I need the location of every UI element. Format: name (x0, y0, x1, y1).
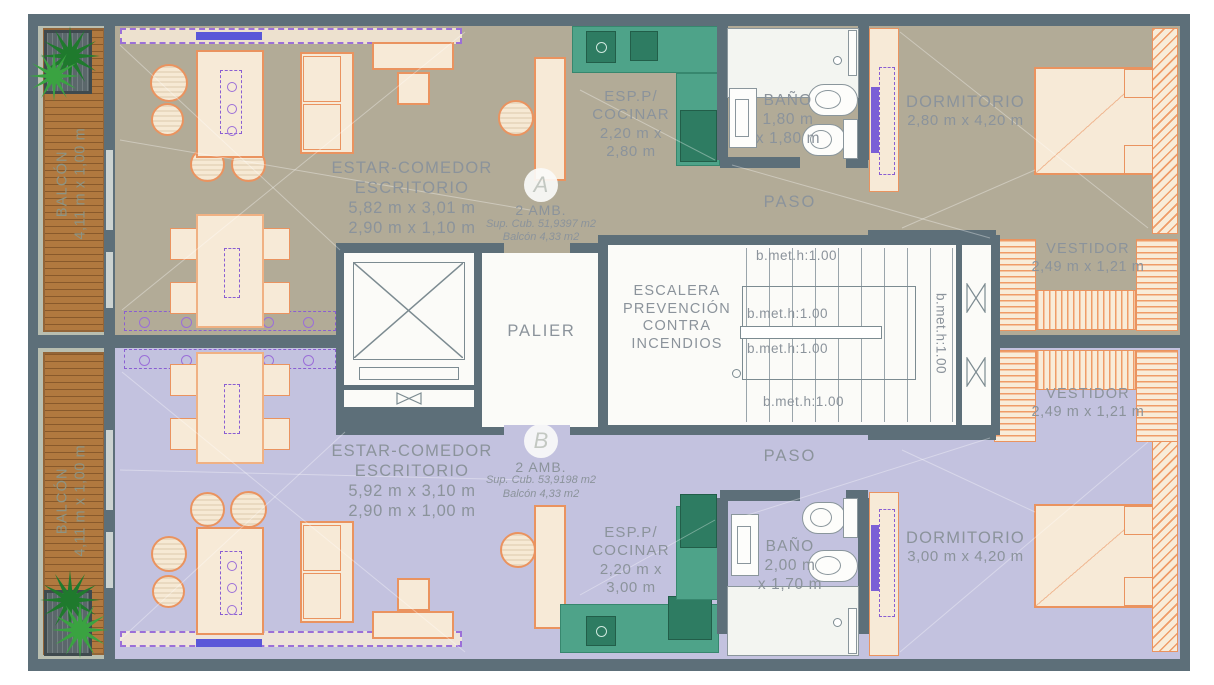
media-table-a (196, 50, 264, 158)
window (106, 150, 113, 230)
pillow (1124, 506, 1153, 535)
vestidor-a-label: VESTIDOR 2,49 m x 1,21 m (1008, 241, 1168, 276)
room-dim: 2,00 m (744, 557, 836, 576)
room-name: ESCRITORIO (328, 178, 496, 198)
stove-icon (630, 31, 658, 61)
window (106, 430, 113, 510)
rail-height-label: b.met.h:1.00 (934, 259, 949, 409)
toilet-tank (843, 119, 858, 159)
shower-door (848, 608, 857, 654)
room-dim: 4,11 m x 1,00 m (72, 416, 90, 586)
stair-label: ESCALERA PREVENCIÓN CONTRA INCENDIOS (610, 283, 744, 354)
room-name: ESTAR-COMEDOR (328, 441, 496, 461)
living-b-label: ESTAR-COMEDOR ESCRITORIO 5,92 m x 3,10 m… (328, 441, 496, 522)
fridge-icon (680, 494, 717, 548)
room-name: VESTIDOR (1008, 241, 1168, 259)
room-dim: 2,20 m x (583, 561, 679, 579)
dining-table-a (196, 214, 264, 328)
sliding-door-a-leaf (196, 32, 262, 40)
bath-a-label: BAÑO 1,80 m x 1,80 m (742, 92, 834, 149)
room-name: PASO (750, 192, 830, 212)
wall (858, 26, 869, 160)
unit-b-type: 2 AMB. (491, 459, 591, 475)
room-name: ESTAR-COMEDOR (328, 158, 496, 178)
room-name: ESP.P/ (583, 88, 679, 106)
bed-a-headboard-wardrobe (1152, 28, 1178, 234)
room-dim: 3,00 m (583, 579, 679, 597)
toilet-icon (802, 502, 846, 534)
room-name: ESCALERA (610, 283, 744, 301)
unit-b-badge: B (524, 424, 558, 458)
room-dim: x 1,80 m (742, 130, 834, 149)
room-name: VESTIDOR (1008, 386, 1168, 404)
pouf (152, 575, 185, 608)
desk-b (372, 611, 454, 639)
media-table-b (196, 527, 264, 635)
bath-b-label: BAÑO 2,00 m x 1,70 m (744, 538, 836, 595)
room-name: BAÑO (744, 538, 836, 557)
room-name: DORMITORIO (888, 528, 1043, 548)
door-opening (800, 490, 846, 501)
sink-icon (586, 616, 616, 646)
vent-shaft (962, 245, 991, 425)
room-dim: 3,00 m x 4,20 m (888, 548, 1043, 566)
fridge-icon (680, 110, 717, 162)
elevator-sill (359, 367, 459, 380)
room-name: ESCRITORIO (328, 461, 496, 481)
room-name: COCINAR (583, 106, 679, 124)
rail-height-label: b.met.h:1.00 (763, 394, 844, 409)
palier-label: PALIER (494, 321, 589, 341)
unit-letter: A (534, 172, 549, 198)
pouf (151, 536, 187, 572)
room-name: BAÑO (742, 92, 834, 111)
stool-b (500, 532, 536, 568)
room-name: BALCÓN (54, 416, 72, 586)
unit-a-type: 2 AMB. (491, 202, 591, 218)
stair-newel (732, 369, 741, 378)
room-dim: 1,80 m (742, 111, 834, 130)
duct-shaft (344, 390, 474, 407)
room-dim: 2,49 m x 1,21 m (1008, 404, 1168, 422)
room-name: BALCÓN (54, 99, 72, 269)
room-dim: 5,92 m x 3,10 m (328, 481, 496, 501)
balcony-b-label: BALCÓN 4,11 m x 1,00 m (54, 416, 89, 586)
bedroom-a-label: DORMITORIO 2,80 m x 4,20 m (888, 92, 1043, 130)
shower-door (848, 30, 857, 76)
room-name: PREVENCIÓN (610, 301, 744, 319)
pillow (1124, 69, 1153, 98)
chair (397, 72, 430, 105)
sofa-a (300, 52, 354, 154)
toilet-tank (843, 498, 858, 538)
work-table-a (534, 57, 566, 181)
rail-height-label: b.met.h:1.00 (747, 306, 828, 321)
stove-icon (668, 596, 712, 640)
vent-icon (966, 283, 986, 313)
kitchen-a-label: ESP.P/ COCINAR 2,20 m x 2,80 m (583, 88, 679, 161)
duct-icon (396, 392, 422, 405)
elevator-icon (353, 262, 465, 360)
room-name: ESP.P/ (583, 524, 679, 542)
room-name: PASO (750, 446, 830, 466)
room-dim: x 1,70 m (744, 576, 836, 595)
rail-height-label: b.met.h:1.00 (747, 341, 828, 356)
room-dim: 2,80 m (583, 143, 679, 161)
pouf (190, 492, 225, 527)
room-dim: 2,90 m x 1,00 m (328, 501, 496, 521)
sofa-b (300, 521, 354, 623)
unit-letter: B (534, 428, 549, 454)
unit-b-balcony-surface: Balcón 4,33 m2 (481, 488, 601, 502)
room-name: CONTRA (610, 318, 744, 336)
room-name: DORMITORIO (888, 92, 1043, 112)
stair-handrail (740, 326, 882, 339)
stool-a (498, 100, 534, 136)
unit-a-surface: Sup. Cub. 51,9397 m2 (481, 218, 601, 232)
room-dim: 4,11 m x 1,00 m (72, 99, 90, 269)
wall (858, 498, 869, 634)
vent-icon (966, 357, 986, 387)
unit-a-balcony-surface: Balcón 4,33 m2 (481, 231, 601, 245)
chair (397, 578, 430, 611)
bedroom-b-label: DORMITORIO 3,00 m x 4,20 m (888, 528, 1043, 566)
door-opening (800, 157, 846, 168)
pouf (150, 64, 188, 102)
room-dim: 2,80 m x 4,20 m (888, 112, 1043, 130)
room-dim: 2,90 m x 1,10 m (328, 218, 496, 238)
room-dim: 2,20 m x (583, 125, 679, 143)
paso-b-label: PASO (750, 446, 830, 466)
sliding-door-b-leaf (196, 639, 262, 647)
pouf (151, 103, 184, 136)
pillow (1124, 145, 1153, 174)
dining-table-b (196, 352, 264, 464)
vestidor-b-wardrobe (1036, 350, 1136, 390)
closet-b (869, 492, 899, 656)
wall (28, 659, 1190, 671)
room-dim: 2,49 m x 1,21 m (1008, 259, 1168, 277)
rail-height-label: b.met.h:1.00 (756, 248, 837, 263)
shower-icon (833, 618, 842, 627)
unit-a-badge: A (524, 168, 558, 202)
unit-b-surface: Sup. Cub. 53,9198 m2 (481, 474, 601, 488)
bed-b-headboard-wardrobe (1152, 428, 1178, 652)
sink-icon (586, 31, 616, 63)
desk-a (372, 42, 454, 70)
elevator-shaft (344, 253, 474, 385)
vestidor-a-wardrobe (1036, 290, 1136, 330)
kitchen-b-label: ESP.P/ COCINAR 2,20 m x 3,00 m (583, 524, 679, 597)
living-a-label: ESTAR-COMEDOR ESCRITORIO 5,82 m x 3,01 m… (328, 158, 496, 239)
plant-icon (24, 18, 112, 110)
wall (28, 14, 1190, 26)
floor-plan: ESTAR-COMEDOR ESCRITORIO 5,82 m x 3,01 m… (0, 0, 1214, 685)
pouf (230, 491, 267, 528)
vestidor-b-label: VESTIDOR 2,49 m x 1,21 m (1008, 386, 1168, 421)
pillow (1124, 577, 1153, 606)
room-name: COCINAR (583, 542, 679, 560)
shower-icon (833, 56, 842, 65)
paso-a-label: PASO (750, 192, 830, 212)
room-name: INCENDIOS (610, 336, 744, 354)
balcony-a-label: BALCÓN 4,11 m x 1,00 m (54, 99, 89, 269)
window (106, 252, 113, 308)
room-name: PALIER (494, 321, 589, 341)
room-dim: 5,82 m x 3,01 m (328, 198, 496, 218)
